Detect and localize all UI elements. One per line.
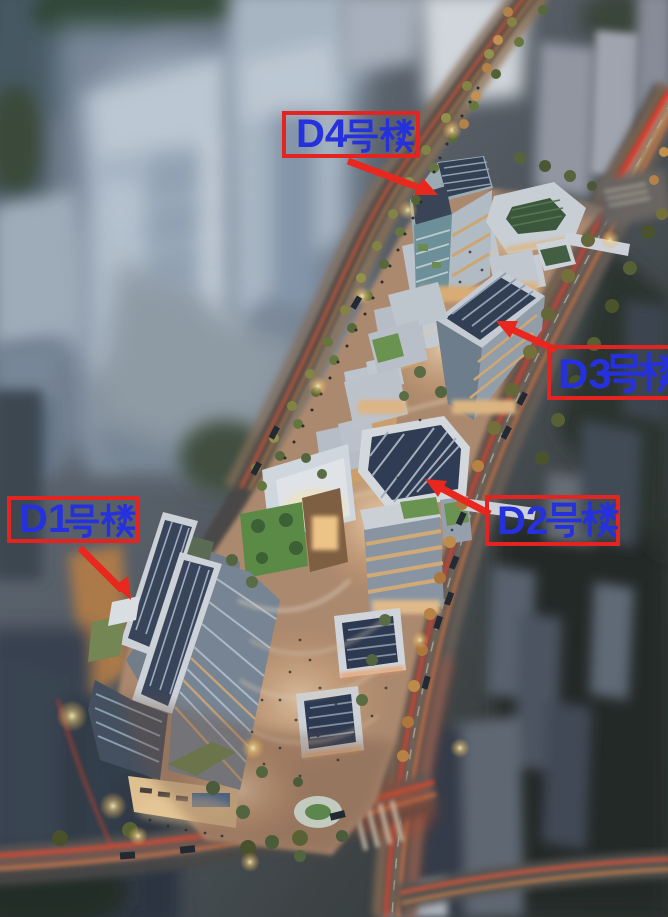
svg-text:D1: D1 [19,497,70,541]
svg-text:D2: D2 [497,499,548,543]
svg-text:D4: D4 [296,112,348,156]
svg-text:D3: D3 [558,350,612,397]
